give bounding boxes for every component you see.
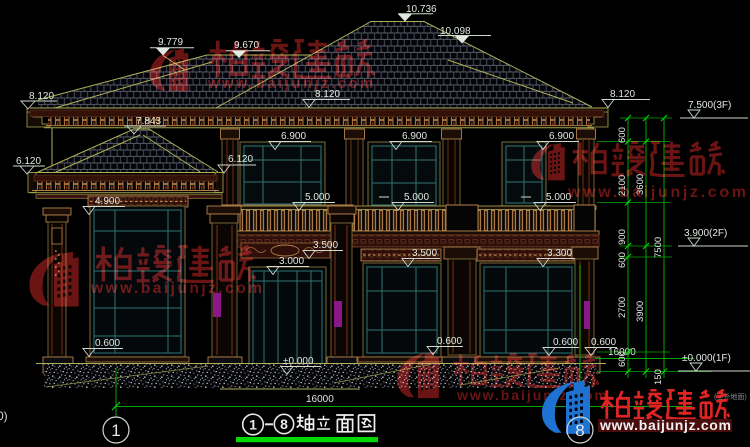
svg-text:6.900: 6.900 (281, 131, 306, 142)
svg-text:4.900: 4.900 (95, 196, 120, 207)
svg-text:3.900(2F): 3.900(2F) (684, 228, 727, 239)
svg-text:9.779: 9.779 (158, 37, 183, 48)
svg-text:900: 900 (617, 229, 628, 245)
svg-text:2700: 2700 (617, 297, 628, 318)
svg-text:1: 1 (249, 417, 257, 433)
svg-text:0): 0) (0, 409, 8, 423)
svg-text:3.300: 3.300 (547, 248, 572, 259)
svg-text:www.baijunjz.com: www.baijunjz.com (599, 417, 731, 433)
svg-text:0.600: 0.600 (437, 336, 462, 347)
svg-text:5.000: 5.000 (305, 192, 330, 203)
svg-text:150: 150 (653, 369, 664, 385)
svg-text:8: 8 (575, 421, 584, 440)
svg-text:±0.000: ±0.000 (283, 356, 314, 367)
svg-text:600: 600 (617, 351, 628, 367)
svg-text:8.120: 8.120 (29, 91, 54, 102)
svg-text:6.120: 6.120 (16, 156, 41, 167)
svg-text:1: 1 (111, 421, 120, 440)
svg-text:16000: 16000 (306, 394, 334, 405)
svg-text:600: 600 (617, 252, 628, 268)
svg-text:5.000: 5.000 (404, 192, 429, 203)
svg-text:6.900: 6.900 (549, 131, 574, 142)
svg-text:0.600: 0.600 (553, 337, 578, 348)
svg-text:6.900: 6.900 (402, 131, 427, 142)
svg-text:±0.000(1F): ±0.000(1F) (682, 353, 731, 364)
svg-text:3900: 3900 (635, 301, 646, 322)
svg-text:3.000: 3.000 (279, 256, 304, 267)
svg-text:7.843: 7.843 (136, 116, 161, 127)
svg-text:3.500: 3.500 (313, 240, 338, 251)
svg-text:0.600: 0.600 (95, 338, 120, 349)
svg-text:6.120: 6.120 (228, 154, 253, 165)
svg-text:7500: 7500 (653, 237, 664, 258)
svg-text:7.500(3F): 7.500(3F) (688, 100, 731, 111)
svg-text:8: 8 (280, 416, 288, 432)
svg-text:8.120: 8.120 (610, 89, 635, 100)
svg-text:3.500: 3.500 (412, 248, 437, 259)
svg-text:600: 600 (617, 127, 628, 143)
